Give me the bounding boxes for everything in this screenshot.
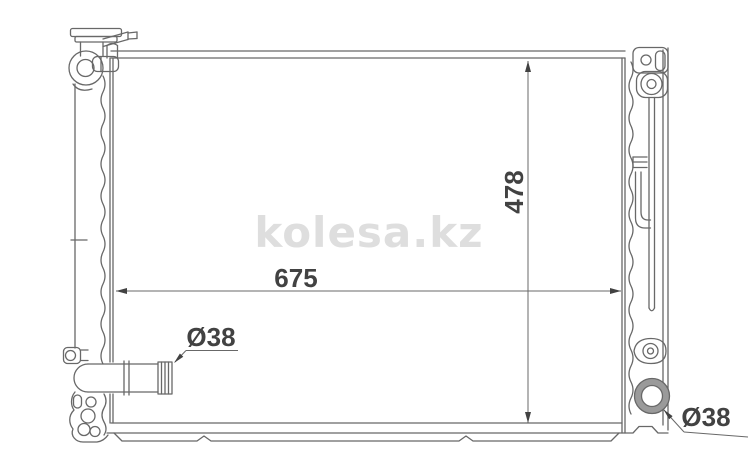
dimension-width-value: 675 — [274, 263, 317, 293]
diagram-canvas: kolesa.kz — [0, 0, 750, 470]
label-inlet-diameter: Ø38 — [174, 322, 238, 363]
label-outlet-diameter: Ø38 — [664, 402, 749, 437]
right-tank — [622, 48, 668, 434]
outlet-port — [635, 379, 670, 414]
dimension-height-value: 478 — [499, 170, 529, 213]
inlet-pipe — [64, 348, 173, 396]
watermark-text: kolesa.kz — [254, 208, 483, 257]
dimension-core-height: 478 — [499, 61, 531, 423]
filler-neck — [69, 29, 137, 91]
radiator-technical-drawing: kolesa.kz — [0, 0, 750, 470]
outlet-diameter-value: Ø38 — [681, 402, 730, 432]
inlet-diameter-value: Ø38 — [186, 322, 235, 352]
dimension-core-width: 675 — [116, 263, 621, 294]
